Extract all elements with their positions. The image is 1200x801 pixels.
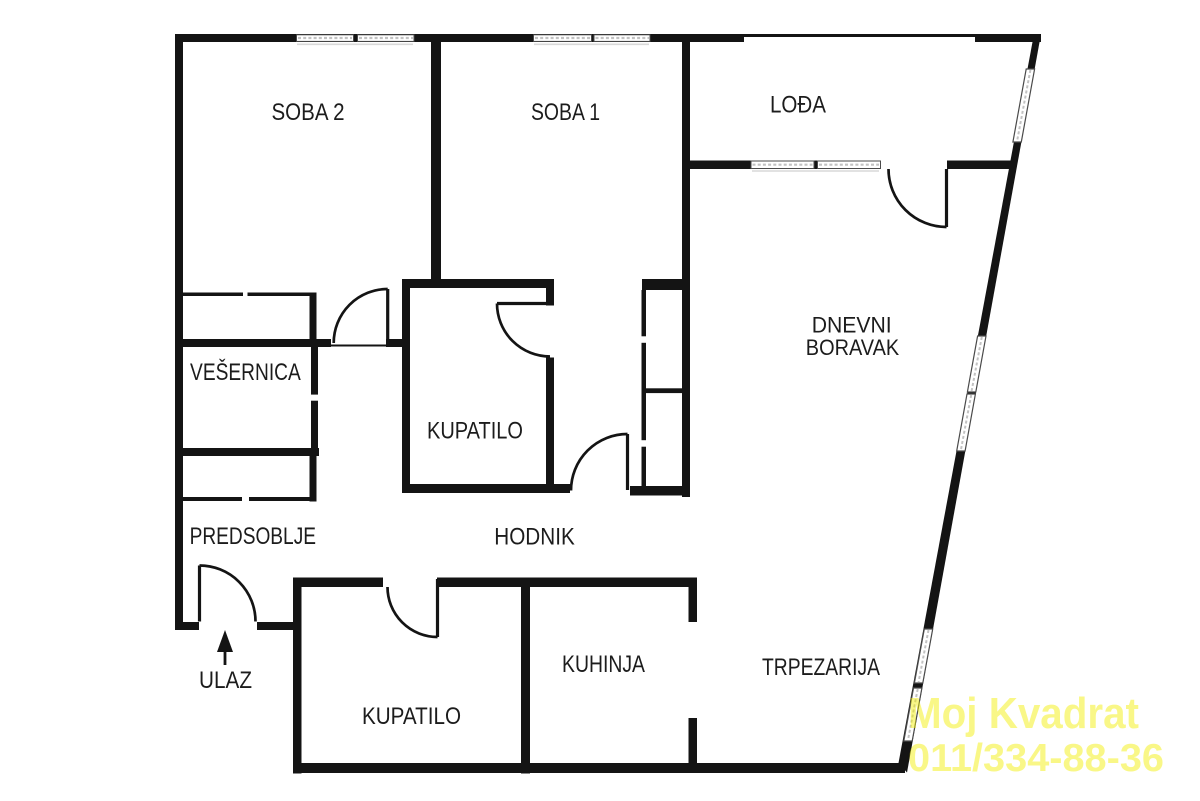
svg-text:BORAVAK: BORAVAK <box>806 335 900 360</box>
svg-text:ULAZ: ULAZ <box>199 667 252 694</box>
svg-text:SOBA 2: SOBA 2 <box>272 99 345 126</box>
svg-text:KUPATILO: KUPATILO <box>362 703 461 730</box>
svg-text:011/334-88-36: 011/334-88-36 <box>908 737 1164 780</box>
svg-text:LOĐA: LOĐA <box>770 92 826 119</box>
svg-text:VEŠERNICA: VEŠERNICA <box>190 358 301 386</box>
svg-text:DNEVNI: DNEVNI <box>812 313 892 338</box>
svg-text:KUPATILO: KUPATILO <box>427 418 523 445</box>
svg-text:TRPEZARIJA: TRPEZARIJA <box>762 654 880 681</box>
svg-text:KUHINJA: KUHINJA <box>562 651 645 678</box>
svg-text:SOBA 1: SOBA 1 <box>531 99 600 126</box>
svg-text:PREDSOBLJE: PREDSOBLJE <box>190 523 316 550</box>
svg-text:HODNIK: HODNIK <box>494 524 575 551</box>
svg-text:Moj Kvadrat: Moj Kvadrat <box>908 689 1139 738</box>
